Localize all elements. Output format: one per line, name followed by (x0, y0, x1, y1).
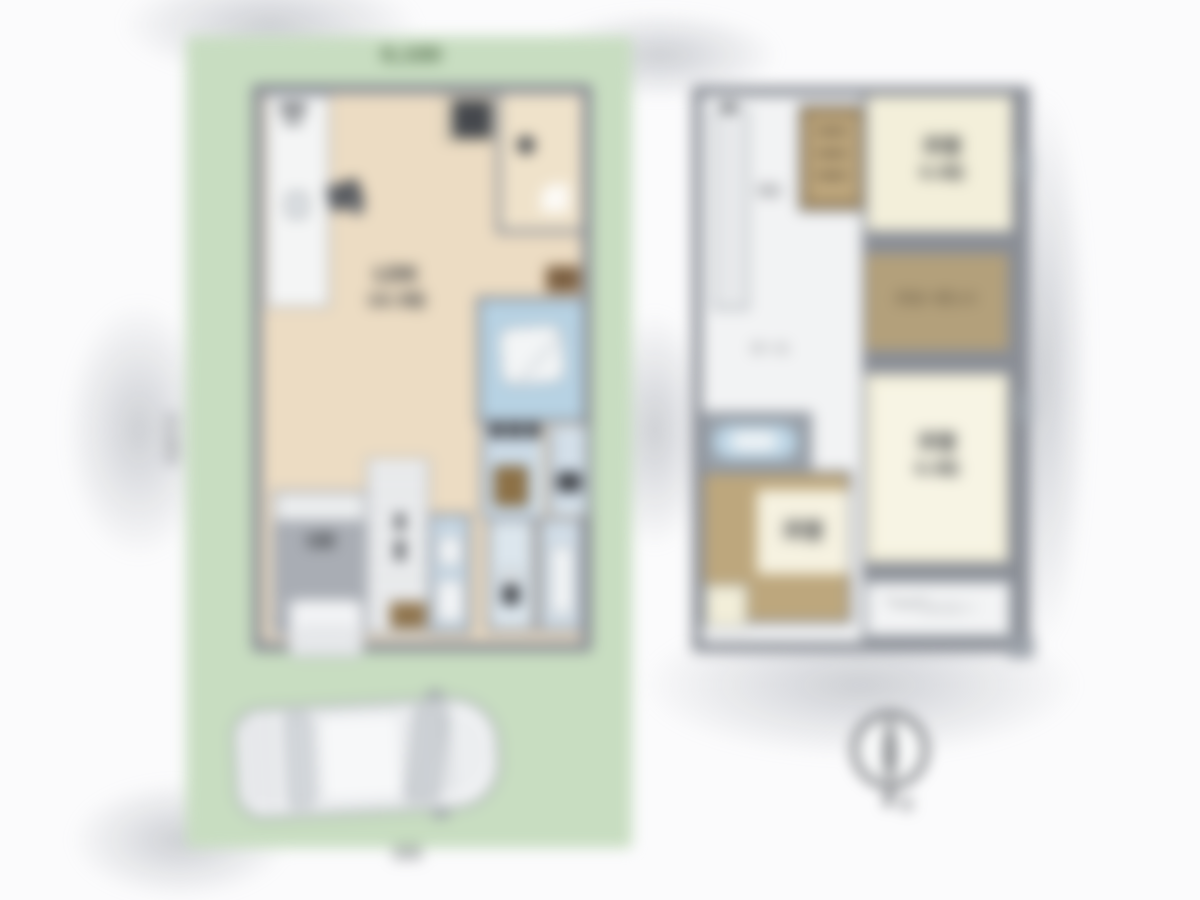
balcony-label: バルコニー (897, 601, 997, 616)
storage-nook (704, 584, 748, 628)
kitchen-appliance-icon (284, 118, 302, 124)
compass-needle-slit (889, 722, 891, 776)
car-mirror (427, 690, 444, 701)
bedroom1-label: 洋室 6.0帖 (892, 134, 992, 183)
car-rear-window (284, 713, 315, 808)
stair-arrow (396, 514, 404, 530)
wall-tab (1018, 392, 1032, 422)
bedroom2-name: 洋室 (917, 430, 957, 455)
room-storage (538, 517, 584, 632)
room-utility-small (547, 426, 586, 515)
stair-arrow (721, 104, 737, 112)
car-mirror (433, 808, 450, 819)
ldk-name: LDK (374, 262, 419, 287)
ldk-size: 16.5帖 (367, 291, 426, 312)
stove-icon (452, 100, 492, 138)
room-bathroom (476, 296, 588, 424)
compass-tail (884, 790, 894, 807)
compass-icon (852, 712, 928, 788)
chair-icon (350, 202, 364, 214)
side-dimension-label: 13,650 (162, 388, 181, 488)
washing-machine-icons (526, 424, 540, 438)
vanity-icon (437, 535, 463, 567)
toilet-icon (502, 585, 520, 605)
door-swing-arc (541, 184, 569, 212)
sink-icon (286, 192, 308, 218)
bedroom1-size: 6.0帖 (920, 163, 964, 183)
room-toilet-2f (700, 412, 812, 472)
stair-arrow (396, 540, 404, 560)
room-balcony: バルコニー (864, 580, 1012, 638)
cabinet-shape (550, 545, 574, 615)
porch-step (298, 628, 356, 652)
room-closet: クローゼット (862, 250, 1012, 354)
hanger-pole (817, 129, 847, 134)
entrance-porch (288, 598, 364, 658)
closet-label: クローゼット (876, 292, 998, 308)
bedroom3-name: 洋室 (763, 518, 843, 544)
room-bedroom2: 洋室 6.0帖 (862, 370, 1012, 566)
toilet-icon (500, 569, 522, 585)
toilet-seat (731, 431, 777, 451)
laundry-pan (494, 466, 528, 506)
storage-mat (546, 266, 580, 292)
stairs-label: 階段 (748, 184, 792, 199)
basin-icon (517, 136, 535, 154)
bedroom3-mat: 洋室 (757, 490, 849, 574)
kitchen-counter (266, 94, 330, 308)
washing-machine-icons (490, 424, 504, 438)
wall-tab (1008, 636, 1034, 658)
bathtub-shape (497, 323, 567, 387)
room-washroom (480, 424, 542, 518)
genkan-label: 玄関 (280, 534, 360, 552)
bedroom2-size: 6.0帖 (915, 459, 959, 479)
room-wic (798, 104, 868, 212)
genkan-hall-floor (276, 494, 364, 520)
room-service (496, 94, 582, 234)
ldk-label: LDK 16.5帖 (336, 262, 456, 312)
car-illustration (231, 695, 502, 821)
room-toilet (486, 517, 536, 632)
car-roof (316, 710, 407, 804)
hanger-pole (817, 151, 847, 156)
washing-machine-icons (508, 424, 522, 438)
wall-tab (1018, 152, 1032, 180)
top-dimension-label: 9,100 (346, 44, 476, 68)
staircase-1f (366, 458, 430, 634)
floor1-plan: LDK 16.5帖 (252, 84, 592, 652)
floor2-plan: 階段 ホール 洋室 6.0帖 クローゼット (692, 86, 1030, 652)
fixture-icon (557, 472, 581, 492)
floorplan-screenshot: 9,100 13,650 道路 (0, 0, 1200, 900)
room-vanity (428, 513, 472, 634)
hall-label: ホール (744, 342, 796, 358)
compass-mark: N (895, 796, 918, 815)
staircase-2f (713, 108, 749, 310)
vanity-icon (435, 579, 465, 623)
kitchen-appliance-icon (280, 104, 306, 112)
bedroom2-label: 洋室 6.0帖 (887, 430, 987, 479)
blurred-plan-scene: 9,100 13,650 道路 (0, 0, 1200, 900)
hanger-pole (817, 173, 847, 178)
stair-landing (390, 602, 426, 628)
road-label: 道路 (362, 844, 452, 863)
bedroom1-name: 洋室 (922, 134, 962, 159)
room-bedroom1: 洋室 6.0帖 (862, 96, 1012, 236)
